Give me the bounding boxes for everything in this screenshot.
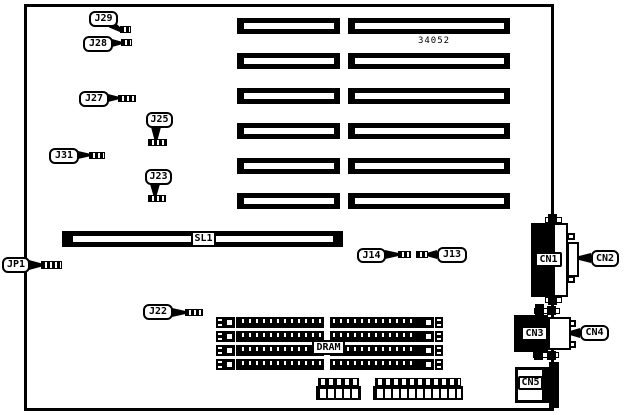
cn3-label-text: CN3	[525, 329, 543, 339]
expansion-slot-stripe	[244, 93, 334, 99]
jumper-j31	[89, 152, 105, 159]
expansion-slot-stripe	[244, 23, 334, 29]
expansion-slot-stripe	[355, 58, 504, 64]
cn3-port-body	[548, 317, 571, 350]
expansion-slot	[237, 88, 340, 104]
simm-slot-bar	[236, 359, 423, 370]
jumper-j28	[121, 39, 132, 46]
simm-latch	[423, 317, 434, 328]
cn3-tab-bottom	[569, 341, 576, 348]
dram-label: DRAM	[312, 340, 345, 355]
simm-end-clip	[216, 350, 224, 356]
callout-j25-text: J25	[150, 115, 168, 125]
expansion-slot	[237, 158, 340, 174]
expansion-slot-stripe	[355, 198, 504, 204]
jumper-j27	[118, 95, 136, 102]
cn1-tab-bottom	[567, 276, 575, 283]
simm-socket	[216, 317, 443, 328]
cn3-tab-top	[569, 320, 576, 327]
expansion-slot	[348, 53, 510, 69]
expansion-slot-stripe	[244, 163, 334, 169]
part-number: 34052	[414, 36, 454, 47]
pin-header	[316, 378, 361, 400]
jumper-jp1	[41, 261, 62, 269]
callout-cn4-text: CN4	[585, 328, 603, 338]
simm-latch	[224, 317, 235, 328]
simm-key-notch	[324, 359, 330, 370]
cn5-bracket-outer	[549, 362, 559, 408]
pin-header-teeth	[316, 386, 361, 400]
jumper-j14	[398, 251, 411, 258]
leader-cn2	[578, 253, 591, 263]
simm-latch-hook	[426, 362, 431, 367]
cn1-dsub-face	[567, 242, 579, 277]
callout-j28-text: J28	[89, 39, 107, 49]
expansion-slot-stripe	[355, 163, 504, 169]
jumper-j23	[148, 195, 166, 202]
simm-end-clip	[216, 364, 224, 370]
cn1-label-text: CN1	[539, 255, 557, 265]
simm-latch	[224, 359, 235, 370]
simm-latch	[224, 345, 235, 356]
expansion-slot	[348, 123, 510, 139]
cn1-screw-bottom	[548, 296, 557, 305]
sl1-label: SL1	[191, 231, 216, 247]
expansion-slot-stripe	[355, 23, 504, 29]
cn1-label: CN1	[535, 252, 562, 267]
simm-end-clip	[216, 336, 224, 342]
cn3-screw-top-b	[547, 306, 556, 315]
simm-latch-hook	[227, 334, 232, 339]
callout-cn2: CN2	[591, 250, 619, 267]
pin-header	[373, 378, 463, 400]
simm-end-clip	[216, 322, 224, 328]
callout-cn4: CN4	[580, 325, 609, 341]
callout-j28: J28	[83, 36, 113, 52]
pin-header-top-row	[375, 378, 461, 386]
callout-j23: J23	[145, 169, 172, 185]
simm-latch-hook	[227, 320, 232, 325]
callout-j29: J29	[89, 11, 118, 27]
callout-j29-text: J29	[94, 14, 112, 24]
simm-end-clip	[435, 322, 443, 328]
callout-j27: J27	[79, 91, 109, 107]
cn3-screw-bottom-b	[547, 351, 556, 360]
expansion-slot-stripe	[244, 198, 334, 204]
callout-j31-text: J31	[55, 151, 73, 161]
expansion-slot	[237, 18, 340, 34]
simm-latch	[423, 359, 434, 370]
simm-key-notch	[324, 317, 330, 328]
expansion-slot-stripe	[355, 93, 504, 99]
simm-latch-hook	[426, 348, 431, 353]
callout-j22-text: J22	[149, 307, 167, 317]
pin-header-top-row	[318, 378, 359, 386]
jumper-j25	[148, 139, 167, 146]
expansion-slot	[237, 123, 340, 139]
sl1-label-text: SL1	[194, 234, 212, 244]
simm-socket	[216, 359, 443, 370]
callout-j27-text: J27	[85, 94, 103, 104]
pin-header-teeth	[373, 386, 463, 400]
callout-j22: J22	[143, 304, 173, 320]
callout-j25: J25	[146, 112, 173, 128]
callout-j31: J31	[49, 148, 79, 164]
expansion-slot-stripe	[244, 128, 334, 134]
callout-j14-text: J14	[362, 251, 380, 261]
simm-latch	[423, 331, 434, 342]
simm-slot-bar	[236, 317, 423, 328]
callout-j14: J14	[357, 248, 386, 263]
expansion-slot-stripe	[244, 58, 334, 64]
expansion-slot	[237, 193, 340, 209]
expansion-slot	[348, 18, 510, 34]
callout-j23-text: J23	[149, 172, 167, 182]
dram-label-text: DRAM	[316, 343, 340, 353]
callout-jp1: JP1	[2, 257, 30, 273]
jumper-j13	[416, 251, 428, 258]
cn1-screw-top	[548, 214, 557, 223]
simm-latch	[224, 331, 235, 342]
simm-latch-hook	[426, 334, 431, 339]
simm-end-clip	[435, 336, 443, 342]
expansion-slot	[237, 53, 340, 69]
callout-jp1-text: JP1	[7, 260, 25, 270]
simm-latch-hook	[227, 362, 232, 367]
expansion-slot-stripe	[355, 128, 504, 134]
simm-end-clip	[435, 364, 443, 370]
expansion-slot	[348, 193, 510, 209]
cn5-label-text: CN5	[521, 378, 539, 388]
jumper-j22	[185, 309, 203, 316]
cn3-label: CN3	[521, 326, 548, 341]
callout-j13: J13	[437, 247, 467, 263]
callout-j13-text: J13	[443, 250, 461, 260]
simm-latch-hook	[426, 320, 431, 325]
cn3-screw-bottom-a	[534, 351, 543, 360]
simm-latch-hook	[227, 348, 232, 353]
cn5-label: CN5	[518, 376, 543, 390]
simm-latch	[423, 345, 434, 356]
motherboard-diagram: 34052 SL1 J29 J28 J27 J25 J31 J23 JP1 J2…	[0, 0, 625, 415]
expansion-slot	[348, 88, 510, 104]
expansion-slot	[348, 158, 510, 174]
simm-end-clip	[435, 350, 443, 356]
cn1-tab-top	[567, 233, 575, 240]
callout-cn2-text: CN2	[596, 254, 614, 264]
cn3-screw-top-a	[535, 304, 544, 315]
